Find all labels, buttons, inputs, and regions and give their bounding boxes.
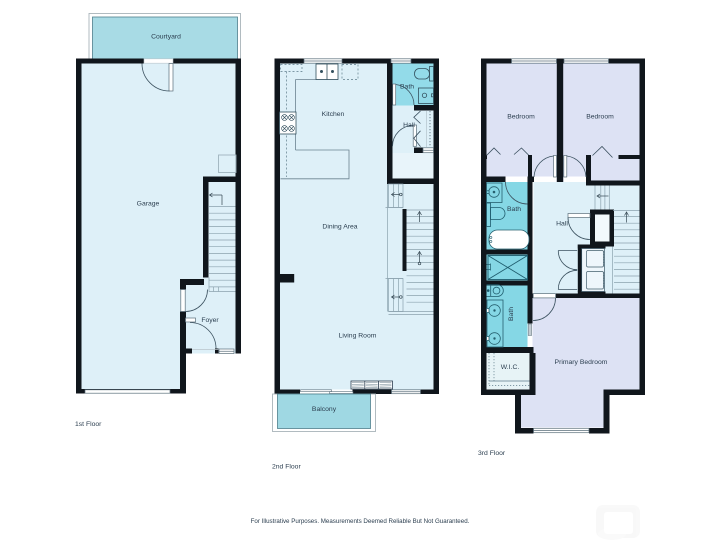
- svg-text:Bath: Bath: [400, 84, 414, 91]
- svg-text:Living Room: Living Room: [339, 333, 377, 340]
- svg-text:Primary Bedroom: Primary Bedroom: [555, 359, 608, 366]
- svg-text:Bath: Bath: [507, 206, 521, 213]
- svg-text:Bath: Bath: [508, 307, 515, 321]
- svg-text:For Illustrative Purposes. Mea: For Illustrative Purposes. Measurements …: [251, 518, 470, 525]
- svg-text:1st Floor: 1st Floor: [75, 421, 102, 428]
- svg-text:Bedroom: Bedroom: [586, 114, 614, 121]
- svg-text:Balcony: Balcony: [312, 406, 337, 413]
- svg-text:2nd Floor: 2nd Floor: [272, 464, 301, 471]
- svg-text:Kitchen: Kitchen: [322, 111, 345, 118]
- svg-text:W.I.C.: W.I.C.: [501, 364, 520, 371]
- svg-text:3rd Floor: 3rd Floor: [478, 450, 506, 457]
- svg-text:Garage: Garage: [137, 201, 160, 208]
- svg-text:Foyer: Foyer: [201, 317, 219, 324]
- svg-text:Bedroom: Bedroom: [507, 114, 535, 121]
- svg-text:Dining Area: Dining Area: [322, 224, 357, 231]
- svg-text:Hall: Hall: [556, 221, 568, 228]
- svg-text:Courtyard: Courtyard: [151, 34, 181, 41]
- svg-text:Hall: Hall: [403, 122, 415, 129]
